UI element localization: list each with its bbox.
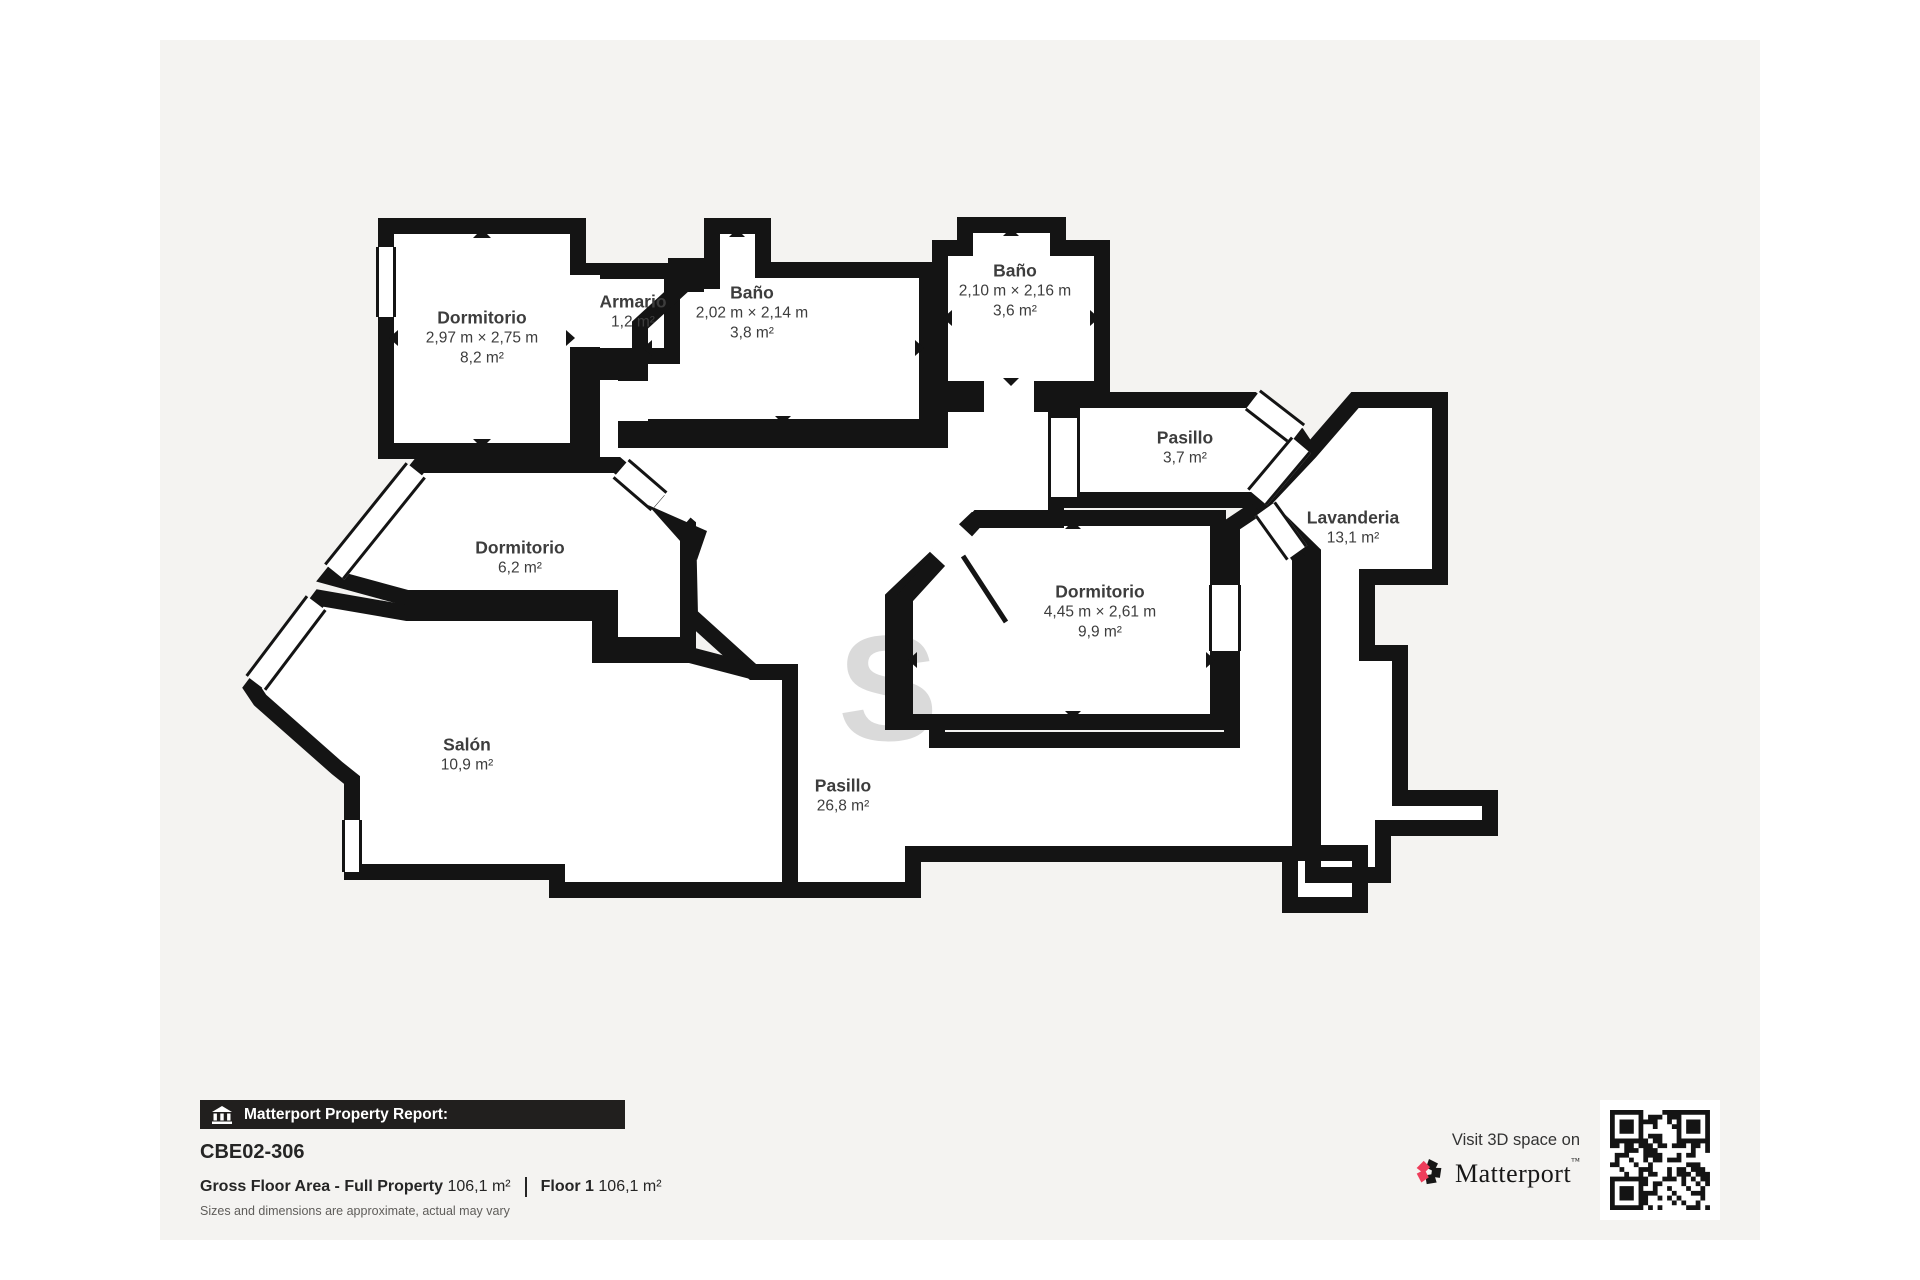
door-opening-icon bbox=[981, 381, 1037, 412]
window-icon bbox=[1209, 585, 1241, 651]
room-label-pasillo-small: Pasillo3,7 m² bbox=[1157, 428, 1213, 469]
room-label-salon: Salón10,9 m² bbox=[441, 735, 494, 776]
matterport-wordmark: Matterport™ bbox=[1455, 1156, 1580, 1189]
room-label-dormitorio-1: Dormitorio2,97 m × 2,75 m8,2 m² bbox=[426, 307, 538, 369]
matterport-logo-icon bbox=[1413, 1156, 1445, 1188]
report-bar-label: Matterport Property Report: bbox=[244, 1106, 448, 1124]
room-label-lavanderia: Lavanderia13,1 m² bbox=[1307, 508, 1399, 549]
disclaimer-text: Sizes and dimensions are approximate, ac… bbox=[200, 1204, 510, 1218]
divider bbox=[525, 1177, 527, 1197]
room-label-dormitorio-2: Dormitorio6,2 m² bbox=[475, 538, 564, 579]
door-opening-icon bbox=[618, 378, 648, 424]
gfa-value: 106,1 m² bbox=[447, 1178, 510, 1196]
window-icon bbox=[342, 820, 362, 872]
floor-value: 106,1 m² bbox=[598, 1178, 661, 1196]
qr-code-icon bbox=[1600, 1100, 1720, 1220]
brand-row: Matterport™ bbox=[1398, 1155, 1580, 1189]
property-id: CBE02-306 bbox=[200, 1141, 305, 1164]
floorplan-svg: S bbox=[0, 0, 1920, 1280]
gfa-label: Gross Floor Area - Full Property bbox=[200, 1178, 443, 1196]
room-label-dormitorio-3: Dormitorio4,45 m × 2,61 m9,9 m² bbox=[1044, 581, 1156, 643]
floor-area-line: Gross Floor Area - Full Property 106,1 m… bbox=[200, 1177, 662, 1197]
floor-label: Floor 1 bbox=[541, 1178, 594, 1196]
visit-3d-text: Visit 3D space on bbox=[1400, 1131, 1580, 1150]
room-label-bano-1: Baño2,02 m × 2,14 m3,8 m² bbox=[696, 282, 808, 344]
window-icon bbox=[376, 247, 396, 317]
window-icon bbox=[1048, 418, 1080, 497]
room-label-bano-2: Baño2,10 m × 2,16 m3,6 m² bbox=[959, 260, 1071, 322]
room-label-pasillo-main: Pasillo26,8 m² bbox=[815, 776, 871, 817]
room-label-armario: Armario1,2 m² bbox=[599, 292, 666, 333]
property-report-icon bbox=[212, 1106, 232, 1124]
qr-code bbox=[1600, 1100, 1720, 1220]
report-bar: Matterport Property Report: bbox=[200, 1100, 625, 1129]
